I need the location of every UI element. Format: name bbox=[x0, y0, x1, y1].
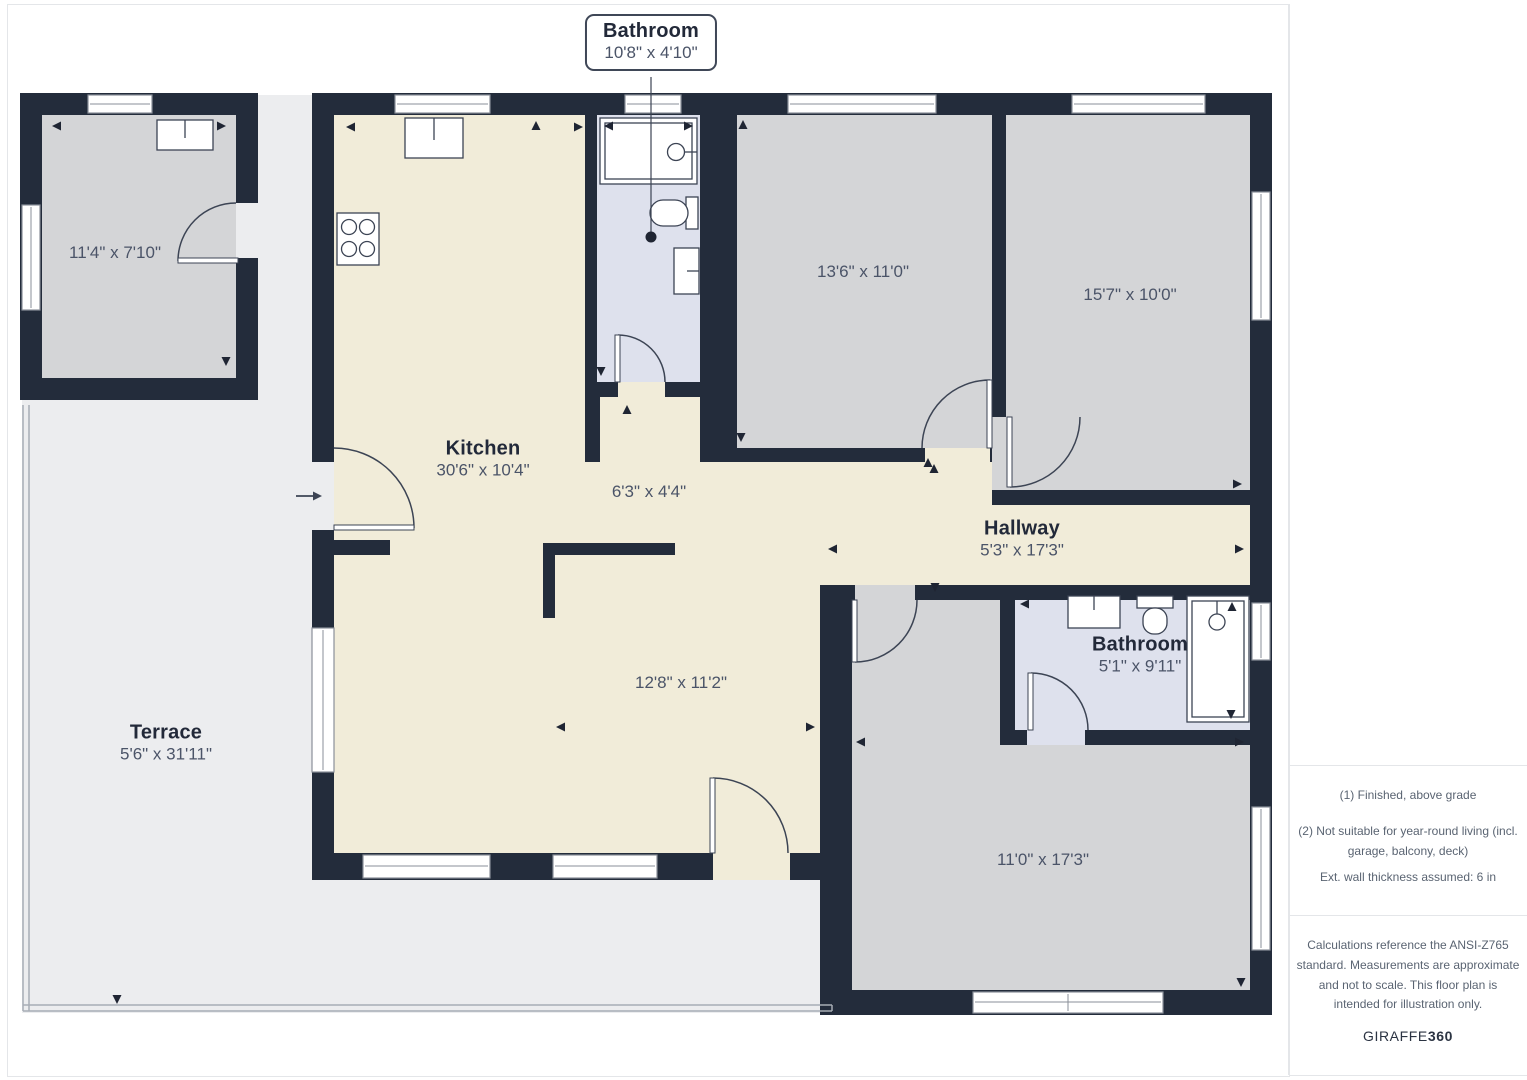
bathroom-callout: Bathroom 10'8" x 4'10" bbox=[585, 14, 717, 71]
storage-room-label: 11'4" x 7'10" bbox=[69, 243, 161, 263]
bedroom2-label: 15'7" x 10'0" bbox=[1083, 285, 1176, 305]
room-name: Bathroom bbox=[1092, 634, 1188, 657]
door-arc bbox=[855, 600, 917, 662]
brand-name: GIRAFFE bbox=[1363, 1028, 1428, 1044]
room-name: Terrace bbox=[120, 722, 212, 745]
passage-label: 6'3" x 4'4" bbox=[612, 482, 686, 502]
entrance-arrow-icon bbox=[296, 492, 322, 501]
floor-plan-page: 11'4" x 7'10" Kitchen 30'6" x 10'4" 6'3"… bbox=[0, 0, 1527, 1080]
bedroom1-label: 13'6" x 11'0" bbox=[817, 262, 909, 282]
door-leaf bbox=[178, 258, 238, 263]
disclaimer-text: Calculations reference the ANSI-Z765 sta… bbox=[1296, 936, 1520, 1015]
room-name: Hallway bbox=[980, 518, 1064, 541]
door-leaves bbox=[178, 258, 1033, 853]
room-dimensions: 15'7" x 10'0" bbox=[1083, 285, 1176, 305]
note-finished: (1) Finished, above grade bbox=[1296, 786, 1520, 806]
sidebar-divider bbox=[1289, 915, 1527, 916]
sink-fixture bbox=[405, 118, 463, 158]
brand-suffix: 360 bbox=[1428, 1028, 1453, 1044]
door-leaf bbox=[1028, 673, 1033, 730]
door-arc bbox=[178, 203, 236, 261]
toilet-fixture bbox=[1137, 596, 1173, 634]
hallway-label: Hallway 5'3" x 17'3" bbox=[980, 518, 1064, 561]
giraffe360-logo: GIRAFFE360 bbox=[1296, 1028, 1520, 1044]
callout-title: Bathroom bbox=[603, 20, 699, 43]
room-name: Kitchen bbox=[436, 438, 529, 461]
sink-fixture bbox=[674, 248, 699, 294]
door-arc bbox=[618, 335, 665, 382]
door-arc bbox=[1031, 673, 1088, 730]
sink-fixture bbox=[1068, 596, 1120, 628]
callout-anchor-dot bbox=[646, 232, 657, 243]
door-arc bbox=[713, 778, 788, 853]
room-dimensions: 6'3" x 4'4" bbox=[612, 482, 686, 502]
living-label: 12'8" x 11'2" bbox=[635, 673, 727, 693]
door-leaf bbox=[852, 600, 857, 662]
door-leaf bbox=[710, 778, 715, 853]
bathroom-bottom-label: Bathroom 5'1" x 9'11" bbox=[1092, 634, 1188, 677]
room-dimensions: 5'3" x 17'3" bbox=[980, 541, 1064, 561]
windows bbox=[22, 95, 1270, 1013]
toilet-fixture bbox=[650, 197, 698, 229]
terrace-label: Terrace 5'6" x 31'11" bbox=[120, 722, 212, 765]
callout-dimensions: 10'8" x 4'10" bbox=[603, 43, 699, 63]
shower-fixture bbox=[1187, 596, 1249, 722]
door-arc bbox=[334, 448, 414, 528]
terrace-railing bbox=[23, 405, 832, 1011]
room-dimensions: 11'4" x 7'10" bbox=[69, 243, 161, 263]
door-leaf bbox=[987, 380, 992, 448]
sidebar-divider bbox=[1289, 1075, 1527, 1076]
room-dimensions: 5'6" x 31'11" bbox=[120, 745, 212, 765]
door-arc bbox=[1010, 417, 1080, 487]
sink-fixture bbox=[157, 120, 213, 150]
note-wall-thickness: Ext. wall thickness assumed: 6 in bbox=[1296, 868, 1520, 888]
plan-overlay bbox=[0, 0, 1527, 1080]
door-leaf bbox=[334, 525, 414, 530]
shower-fixture bbox=[600, 118, 697, 184]
room-dimensions: 30'6" x 10'4" bbox=[436, 461, 529, 481]
bedroom3-label: 11'0" x 17'3" bbox=[997, 850, 1089, 870]
stove-fixture bbox=[337, 213, 379, 265]
kitchen-label: Kitchen 30'6" x 10'4" bbox=[436, 438, 529, 481]
room-dimensions: 11'0" x 17'3" bbox=[997, 850, 1089, 870]
door-leaf bbox=[1007, 417, 1012, 487]
door-leaf bbox=[615, 335, 620, 382]
room-dimensions: 13'6" x 11'0" bbox=[817, 262, 909, 282]
room-dimensions: 5'1" x 9'11" bbox=[1092, 657, 1188, 677]
note-not-suitable: (2) Not suitable for year-round living (… bbox=[1296, 822, 1520, 862]
room-dimensions: 12'8" x 11'2" bbox=[635, 673, 727, 693]
sidebar-divider bbox=[1289, 765, 1527, 766]
door-arc bbox=[922, 380, 990, 448]
